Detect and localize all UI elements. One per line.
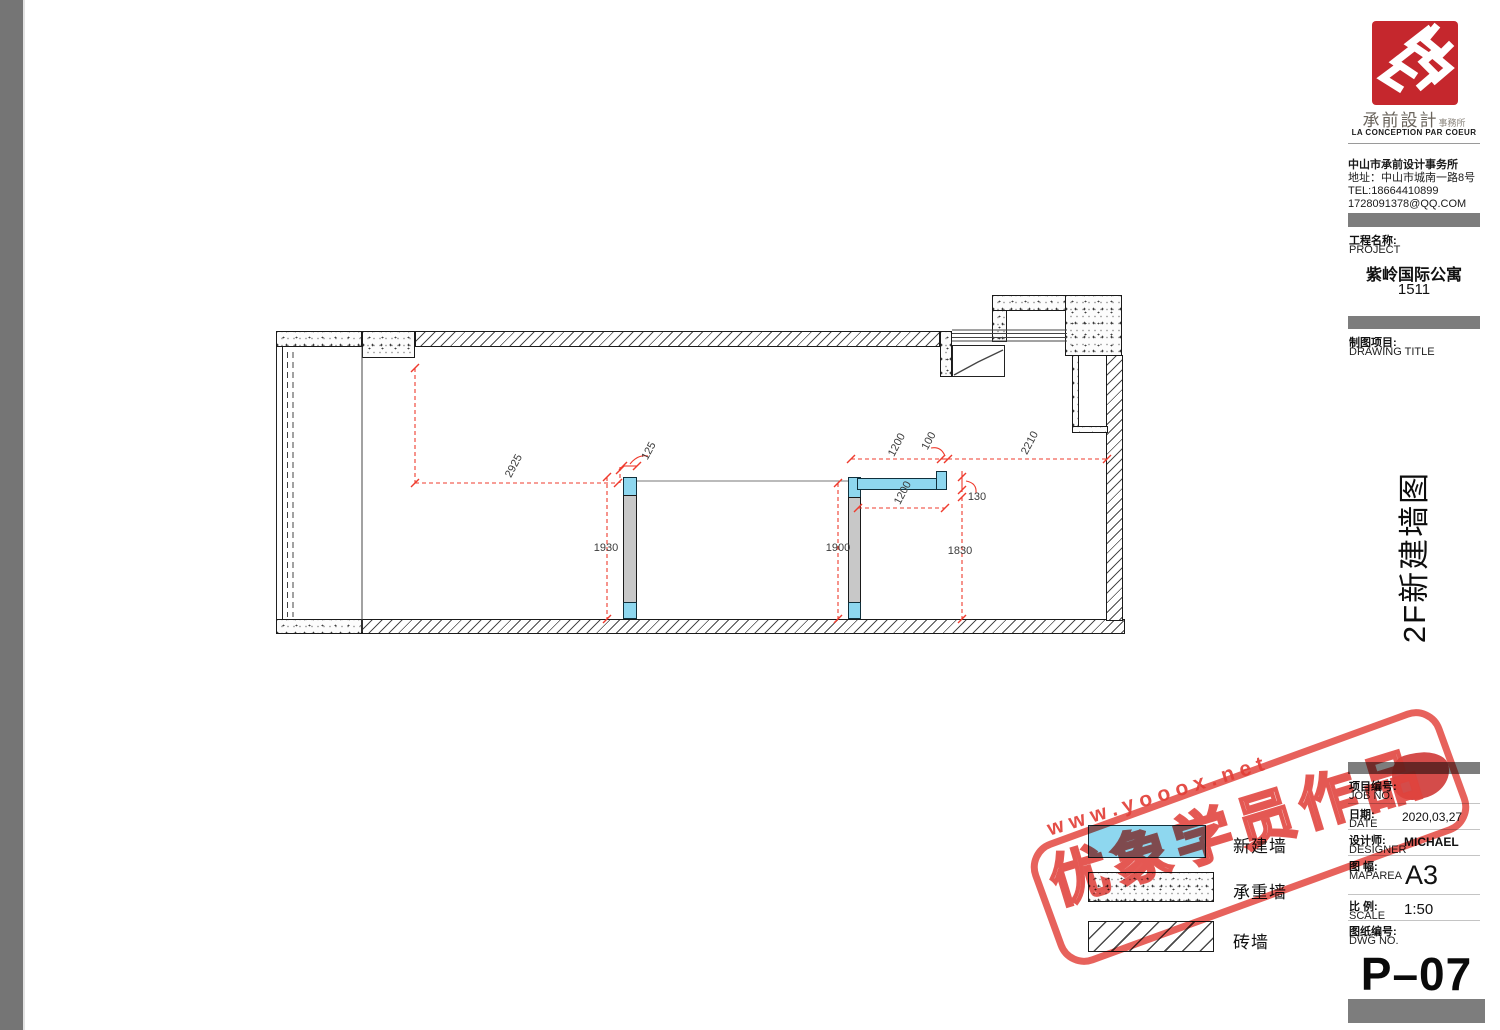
project-number: 1511	[1348, 281, 1480, 298]
maparea-value: A3	[1405, 860, 1438, 891]
divider	[1348, 829, 1480, 830]
legend-label: 新建墙	[1233, 832, 1287, 857]
divider	[1348, 920, 1480, 921]
drawing-label-en: DRAWING TITLE	[1349, 346, 1435, 358]
section-bar	[1348, 999, 1485, 1023]
brand-slogan: LA CONCEPTION PAR COEUR	[1348, 128, 1480, 137]
contact-line: 1728091378@QQ.COM	[1348, 198, 1498, 211]
contact-line: 中山市承前设计事务所	[1348, 159, 1498, 172]
dim-label: 1930	[589, 542, 623, 554]
drawing-sheet: 2925 125 1200 100 2210 1200 1930 1900 18…	[0, 0, 1500, 1030]
section-bar	[1348, 762, 1480, 774]
section-bar	[1348, 213, 1480, 227]
divider	[1348, 855, 1480, 856]
maparea-label-en: MAPAREA	[1349, 870, 1402, 882]
divider	[1348, 894, 1480, 895]
plan-linework	[270, 280, 1140, 660]
section-bar	[1348, 316, 1480, 329]
legend-swatch-load-bearing-wall	[1088, 872, 1214, 902]
legend-label: 承重墙	[1233, 878, 1287, 903]
company-logo-icon	[1372, 21, 1458, 105]
dim-label: 130	[964, 491, 990, 503]
divider	[1348, 143, 1480, 144]
legend-swatch-new-wall	[1088, 825, 1206, 858]
legend-swatch-brick-wall	[1088, 921, 1214, 952]
floor-plan: 2925 125 1200 100 2210 1200 1930 1900 18…	[0, 0, 1500, 1030]
scale-value: 1:50	[1404, 901, 1433, 918]
legend-label: 砖墙	[1233, 928, 1269, 953]
contact-line: TEL:18664410899	[1348, 185, 1498, 198]
dwg-number: P–07	[1348, 947, 1485, 1001]
contact-line: 地址：中山市城南一路8号	[1348, 172, 1498, 185]
jobno-label-en: JOB NO.	[1349, 790, 1393, 802]
divider	[1348, 803, 1480, 804]
designer-value: MICHAEL	[1404, 835, 1459, 849]
date-value: 2020,03,27	[1402, 810, 1462, 824]
dim-label: 1900	[821, 542, 855, 554]
brand-name-suffix: 事務所	[1438, 118, 1465, 128]
contact-info: 中山市承前设计事务所 地址：中山市城南一路8号 TEL:18664410899 …	[1348, 159, 1498, 211]
drawing-title-vertical: 2F新建墙图	[1395, 457, 1435, 657]
project-label-en: PROJECT	[1349, 244, 1400, 256]
dwgno-label-en: DWG NO.	[1349, 935, 1399, 947]
dim-label: 1830	[943, 545, 977, 557]
